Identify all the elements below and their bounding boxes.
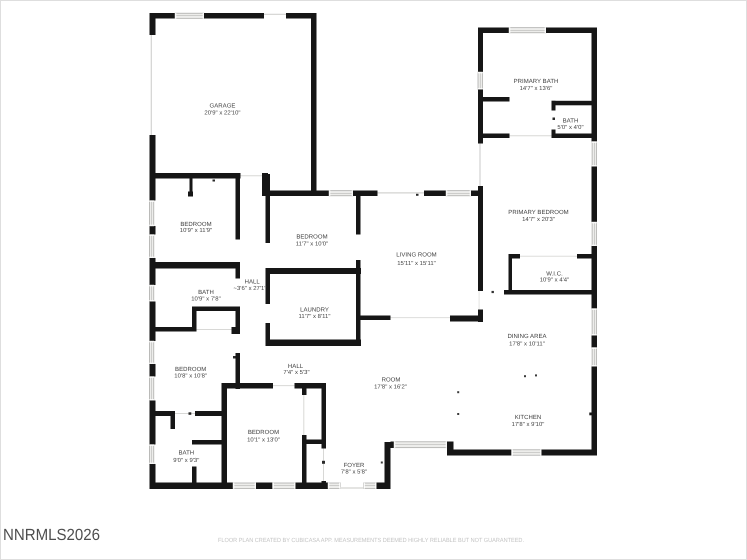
svg-text:LAUNDRY: LAUNDRY: [300, 306, 329, 313]
svg-text:14'7" x 20'3": 14'7" x 20'3": [522, 216, 555, 223]
svg-text:10'9" x 4'4": 10'9" x 4'4": [540, 277, 570, 284]
svg-text:17'8" x 16'2": 17'8" x 16'2": [374, 384, 407, 391]
svg-text:7'4" x 5'3": 7'4" x 5'3": [283, 369, 309, 376]
svg-text:ROOM: ROOM: [382, 377, 401, 384]
svg-text:BEDROOM: BEDROOM: [248, 429, 279, 436]
svg-text:10'8" x 10'8": 10'8" x 10'8": [174, 373, 207, 380]
svg-text:BATH: BATH: [178, 449, 194, 456]
svg-text:14'7" x 13'6": 14'7" x 13'6": [520, 85, 553, 92]
svg-text:BATH: BATH: [563, 118, 579, 125]
svg-text:~3'6" x 27'1": ~3'6" x 27'1": [234, 285, 267, 292]
svg-text:5'0" x 4'0": 5'0" x 4'0": [557, 124, 583, 131]
svg-text:11'7" x 10'0": 11'7" x 10'0": [296, 240, 328, 247]
svg-text:11'7" x 8'11": 11'7" x 8'11": [299, 313, 331, 320]
svg-text:DINING AREA: DINING AREA: [507, 333, 546, 340]
svg-text:BATH: BATH: [198, 289, 214, 296]
svg-text:W.I.C.: W.I.C.: [546, 271, 563, 278]
svg-text:HALL: HALL: [245, 279, 261, 286]
svg-text:GARAGE: GARAGE: [210, 102, 236, 109]
svg-text:10'9" x 11'9": 10'9" x 11'9": [180, 227, 212, 234]
svg-text:7'8" x 5'8": 7'8" x 5'8": [341, 468, 367, 475]
svg-text:PRIMARY BEDROOM: PRIMARY BEDROOM: [508, 209, 568, 216]
svg-text:BEDROOM: BEDROOM: [296, 233, 327, 240]
svg-text:KITCHEN: KITCHEN: [515, 414, 542, 421]
svg-text:NNRMLS2026: NNRMLS2026: [3, 526, 100, 544]
svg-text:15'11" x 15'11": 15'11" x 15'11": [397, 260, 436, 267]
svg-text:17'8" x 9'10": 17'8" x 9'10": [512, 421, 545, 428]
svg-text:FLOOR PLAN CREATED BY CUBICASA: FLOOR PLAN CREATED BY CUBICASA APP. MEAS…: [218, 537, 524, 544]
svg-text:PRIMARY BATH: PRIMARY BATH: [514, 78, 559, 85]
svg-text:10'1" x 13'0": 10'1" x 13'0": [247, 437, 280, 444]
svg-text:BEDROOM: BEDROOM: [175, 366, 206, 373]
svg-text:BEDROOM: BEDROOM: [180, 221, 211, 228]
svg-text:17'8" x 10'11": 17'8" x 10'11": [509, 340, 545, 347]
svg-text:LIVING ROOM: LIVING ROOM: [396, 252, 436, 259]
svg-text:9'0" x 9'3": 9'0" x 9'3": [173, 457, 199, 464]
svg-text:20'9" x 22'10": 20'9" x 22'10": [204, 109, 240, 116]
svg-text:FOYER: FOYER: [344, 462, 365, 469]
svg-text:10'9" x 7'8": 10'9" x 7'8": [191, 295, 221, 302]
